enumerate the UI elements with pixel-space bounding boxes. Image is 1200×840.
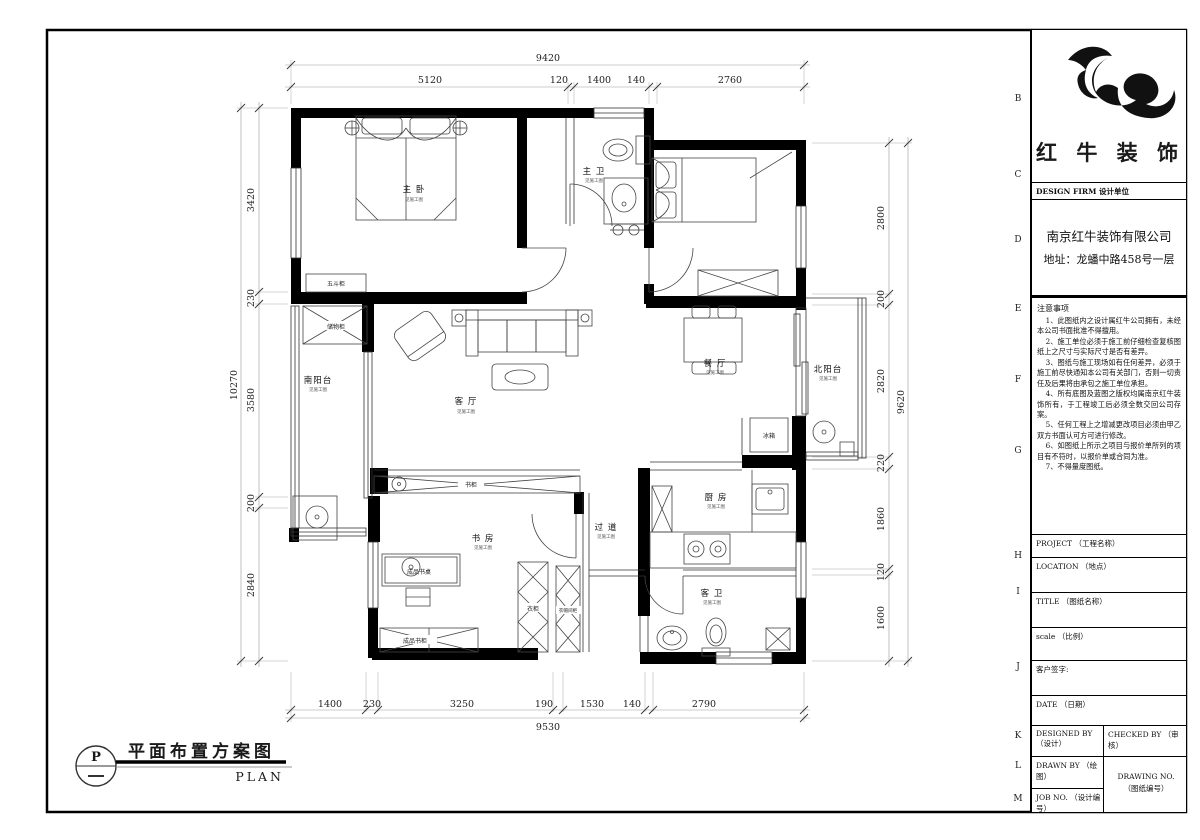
- svg-text:200: 200: [876, 290, 887, 308]
- label-storage: 储物柜: [327, 323, 345, 331]
- room-label-living: 客 厅: [455, 396, 478, 407]
- title-block: 红 牛 装 饰 DESIGN FIRM 设计单位 南京红牛装饰有限公司 地址：龙…: [1030, 30, 1186, 812]
- svg-text:5120: 5120: [418, 75, 442, 86]
- master-bath-fixtures: [603, 136, 650, 235]
- row-letter: J: [1010, 662, 1026, 672]
- field-project: PROJECT （工程名称）: [1032, 535, 1186, 558]
- room-label-master-bath: 主 卫: [583, 166, 606, 177]
- svg-text:2820: 2820: [876, 369, 887, 393]
- svg-text:见施工图: 见施工图: [474, 544, 492, 551]
- guest-bath-fixtures: [657, 618, 790, 656]
- room-label-north-balcony: 北阳台: [814, 364, 843, 375]
- row-letter: H: [1010, 551, 1026, 561]
- field-date: DATE （日期）: [1032, 696, 1186, 726]
- logo-text: 红 牛 装 饰: [1036, 140, 1184, 165]
- svg-text:2800: 2800: [876, 206, 887, 230]
- svg-text:200: 200: [246, 494, 257, 512]
- svg-text:230: 230: [246, 289, 257, 307]
- svg-text:见施工图: 见施工图: [585, 177, 603, 184]
- label-bookcase2: 成品书柜: [403, 637, 427, 645]
- dim-bottom-total: 9530: [536, 722, 560, 733]
- doors: [522, 184, 693, 614]
- svg-text:见施工图: 见施工图: [405, 196, 423, 203]
- note-item: 5、任何工程上之增减更改项目必须由甲乙双方书面认可方可进行修改。: [1037, 420, 1181, 441]
- notes-title: 注意事项: [1037, 303, 1181, 314]
- note-item: 6、如图纸上所示之项目与报价单所列的项目有不符时，以报价单或合同为准。: [1037, 441, 1181, 462]
- row-letter: D: [1010, 235, 1026, 245]
- notes-section: 注意事项 1、此图纸内之设计属红牛公司拥有，未经本公司书面批准不得擅用。 2、施…: [1032, 298, 1186, 535]
- field-drawing-no: DRAWING NO.（图纸编号）: [1104, 757, 1186, 812]
- field-job-no: JOB NO. （设计编号）: [1032, 789, 1103, 812]
- svg-text:3250: 3250: [450, 699, 474, 710]
- extension-lines: [237, 60, 912, 722]
- svg-text:120: 120: [876, 563, 887, 581]
- svg-text:1600: 1600: [876, 606, 887, 630]
- room-label-master-bedroom: 主 卧: [403, 184, 426, 195]
- row-letter: F: [1010, 375, 1026, 385]
- room-label-study: 书 房: [472, 533, 495, 544]
- company-address: 地址：龙蟠中路458号一层: [1032, 251, 1186, 267]
- field-drawn-drawingno: DRAWN BY （绘图） JOB NO. （设计编号） DRAWING NO.…: [1032, 757, 1186, 812]
- drawing-title-en: PLAN: [235, 769, 284, 784]
- svg-text:1400: 1400: [318, 699, 342, 710]
- master-bedroom-furniture: [306, 116, 467, 292]
- row-letter: G: [1010, 446, 1026, 456]
- field-location: LOCATION （地点）: [1032, 558, 1186, 593]
- svg-text:见施工图: 见施工图: [597, 533, 615, 540]
- living-room-furniture: [392, 309, 592, 390]
- svg-text:见施工图: 见施工图: [309, 386, 327, 393]
- label-desk: 成品书桌: [407, 568, 431, 576]
- field-drawn-by: DRAWN BY （绘图）: [1032, 757, 1103, 782]
- note-item: 1、此图纸内之设计属红牛公司拥有，未经本公司书面批准不得擅用。: [1037, 316, 1181, 337]
- svg-text:140: 140: [627, 75, 645, 86]
- row-letter: I: [1010, 587, 1026, 597]
- row-letter: L: [1010, 761, 1026, 771]
- windows: [291, 108, 866, 664]
- title-bubble-symbol: P: [91, 750, 101, 765]
- svg-text:3420: 3420: [246, 188, 257, 212]
- partitions: [374, 118, 796, 652]
- field-signature: 客户签字:: [1032, 661, 1186, 696]
- room-label-dining: 餐 厅: [704, 359, 727, 369]
- note-item: 3、图纸与施工现场如有任何差异，必须于施工前尽快通知本公司有关部门，否则一切责任…: [1037, 358, 1181, 389]
- row-letter: C: [1010, 170, 1026, 180]
- drawing-title-cn: 平面布置方案图: [128, 741, 275, 762]
- label-wardrobe: 衣柜: [527, 605, 539, 613]
- svg-text:2790: 2790: [692, 699, 716, 710]
- kitchen-fixtures: [650, 470, 796, 568]
- label-fridge: 冰箱: [763, 432, 775, 440]
- svg-text:见施工图: 见施工图: [706, 369, 724, 376]
- room-label-kitchen: 厨 房: [705, 492, 728, 503]
- sheet-border: [47, 30, 1186, 812]
- study-furniture: [374, 476, 580, 652]
- svg-text:1530: 1530: [580, 699, 604, 710]
- label-cloak-cabinet: 衣帽间柜: [559, 607, 578, 614]
- field-checked-by: CHECKED BY （审核）: [1104, 726, 1186, 751]
- svg-text:见施工图: 见施工图: [703, 599, 721, 606]
- svg-text:见施工图: 见施工图: [819, 375, 837, 382]
- room-label-south-balcony: 南阳台: [304, 375, 333, 386]
- note-item: 7、不得量度图纸。: [1037, 462, 1181, 472]
- row-letter: B: [1010, 94, 1026, 104]
- company-name: 南京红牛装饰有限公司: [1032, 226, 1186, 245]
- row-letter: K: [1010, 731, 1026, 741]
- logo-section: 红 牛 装 饰: [1032, 30, 1186, 183]
- field-title: TITLE （图纸名称）: [1032, 593, 1186, 628]
- svg-text:见施工图: 见施工图: [707, 503, 725, 510]
- drawing-sheet: { "sheet": { "row_letters": ["B","C","D"…: [0, 0, 1200, 840]
- svg-text:190: 190: [535, 699, 553, 710]
- label-five-drawer: 五斗柜: [327, 280, 345, 288]
- room-labels: 主 卧 见施工图 主 卫 见施工图 客 厅 见施工图 餐 厅 见施工图 南阳台 …: [304, 166, 843, 606]
- room-label-guest-bath: 客 卫: [701, 588, 724, 599]
- note-item: 4、所有底图及蓝图之版权均属南京红牛装饰所有，于工程竣工后必须全数交回公司存案。: [1037, 389, 1181, 420]
- north-balcony-fixtures: [813, 421, 854, 456]
- dim-top-total: 9420: [536, 53, 560, 64]
- svg-text:230: 230: [363, 699, 381, 710]
- label-bookcase: 书柜: [465, 481, 477, 489]
- svg-text:见施工图: 见施工图: [457, 408, 475, 415]
- svg-text:220: 220: [876, 454, 887, 472]
- row-letter: E: [1010, 304, 1026, 314]
- svg-text:3580: 3580: [246, 388, 257, 412]
- dim-right-total: 9620: [896, 390, 907, 414]
- bedroom2-furniture: [652, 152, 792, 296]
- drawing-title-block: P 平面布置方案图 PLAN: [76, 741, 292, 786]
- svg-text:140: 140: [623, 699, 641, 710]
- svg-text:2840: 2840: [246, 573, 257, 597]
- svg-text:1400: 1400: [587, 75, 611, 86]
- room-label-hallway: 过 道: [595, 522, 618, 533]
- south-balcony-fixtures: [293, 496, 337, 540]
- field-designed-checked: DESIGNED BY （设计） CHECKED BY （审核）: [1032, 726, 1186, 757]
- floor-plan-drawing: 9420 5120 120 1400 140 2760 9530 1400 23…: [0, 0, 1200, 840]
- svg-text:1860: 1860: [876, 507, 887, 531]
- design-firm-header: DESIGN FIRM 设计单位: [1032, 183, 1186, 200]
- rednew-bull-logo-icon: 红 牛 装 饰: [1032, 30, 1186, 182]
- svg-text:2760: 2760: [718, 75, 742, 86]
- dimension-ticks: [237, 61, 912, 722]
- firm-info: 南京红牛装饰有限公司 地址：龙蟠中路458号一层: [1032, 200, 1186, 298]
- walls: [289, 108, 806, 664]
- field-designed-by: DESIGNED BY （设计）: [1032, 726, 1103, 749]
- svg-text:120: 120: [550, 75, 568, 86]
- note-item: 2、施工单位必须于施工前仔细检查复核图纸上之尺寸与实际尺寸是否有差异。: [1037, 337, 1181, 358]
- field-scale: scale （比例）: [1032, 628, 1186, 661]
- row-letter: M: [1010, 794, 1026, 804]
- dim-left-total: 10270: [229, 370, 240, 400]
